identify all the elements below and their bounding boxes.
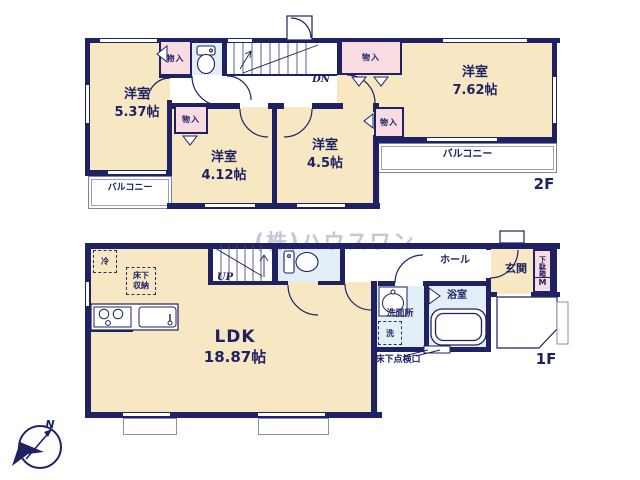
compass-icon: N [12,418,61,468]
wall [312,103,343,109]
laundry-space: 洗 [378,321,402,345]
wall [340,243,345,282]
shoe-cabinet-label: 下駄箱 [538,256,548,277]
f2-closet-ne: 物入 [340,40,402,75]
fridge-label: 冷 [101,256,109,267]
window [228,38,252,43]
fridge-space: 冷 [93,250,117,273]
window [258,412,325,417]
closet-label: 物入 [380,117,398,128]
wall [424,286,429,347]
wall [378,281,395,286]
f2-toilet-fill [191,43,223,75]
room-label: 洋室 [435,66,515,81]
room-label: 洋室 [184,151,264,166]
wall [373,135,379,209]
ldk-size: 18.87帖 [180,349,290,366]
ldk-label: LDK [195,328,275,348]
floor2-label: 2F [527,176,561,193]
compass-north-label: N [45,418,54,431]
entrance-label: 玄関 [494,263,538,276]
stairs-dn-label: DN [306,74,336,86]
balcony-label: バルコニー [378,149,557,161]
wall [423,281,490,286]
window [85,85,90,123]
watermark: (株)ハウスワン [225,226,445,256]
stairs-up-label: UP [212,272,238,284]
stair-door [287,16,312,40]
terrace-step [123,418,177,435]
window [205,203,255,208]
floor-storage-label: 床下収納 [133,271,149,291]
wall [272,107,277,209]
balcony-label: バルコニー [88,183,172,193]
washroom-label: 洗面所 [376,309,424,319]
f2-stairs-fill [225,43,337,75]
window [443,38,527,43]
window [297,203,345,208]
closet-label: 物入 [182,114,200,125]
terrace-step [258,418,329,435]
room-size: 5.37帖 [97,106,177,121]
closet-label: 物入 [362,52,380,63]
inspection-hatch-label: 床下点検口 [364,355,432,365]
window [123,412,170,417]
room-size: 4.12帖 [184,169,264,184]
window [85,282,90,306]
shoe-cabinet-m: M [535,277,550,287]
room-size: 4.5帖 [285,157,365,172]
hall-label: ホール [430,255,480,267]
window [100,38,157,43]
wall [371,347,491,352]
counter-edge [91,328,133,332]
bath-label: 浴室 [432,290,482,302]
wall [486,243,491,250]
wall [552,243,557,297]
laundry-label: 洗 [386,328,394,339]
wall [222,43,227,76]
floor-plan: 物入 物入 物入 物入 下駄箱 M 冷 床下収納 洗 [0,0,640,480]
window [552,77,557,123]
f2-closet-east: 物入 [374,107,404,138]
wall [272,243,278,285]
floor1-label: 1F [529,351,563,368]
window [108,170,166,175]
closet-label: 物入 [167,53,185,64]
window [427,137,497,142]
room-size: 7.62帖 [435,84,515,99]
f2-closet-center: 物入 [174,105,208,134]
room-label: 洋室 [285,139,365,154]
wall [486,292,497,297]
floor-storage: 床下収納 [126,267,156,295]
door-arc [497,297,530,330]
f2-closet-nw: 物入 [159,40,192,76]
room-label: 洋室 [97,88,177,103]
